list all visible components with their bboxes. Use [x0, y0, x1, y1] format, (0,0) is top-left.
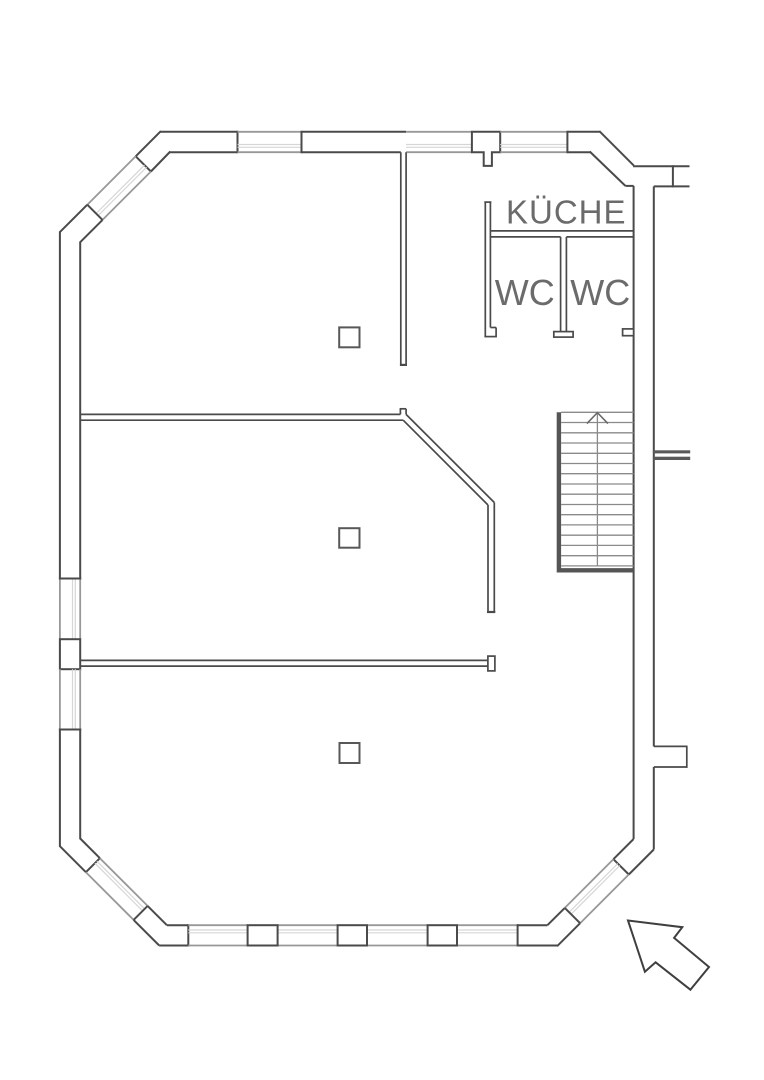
svg-text:WC: WC — [570, 272, 630, 313]
svg-text:WC: WC — [495, 272, 555, 313]
svg-text:KÜCHE: KÜCHE — [506, 193, 627, 230]
